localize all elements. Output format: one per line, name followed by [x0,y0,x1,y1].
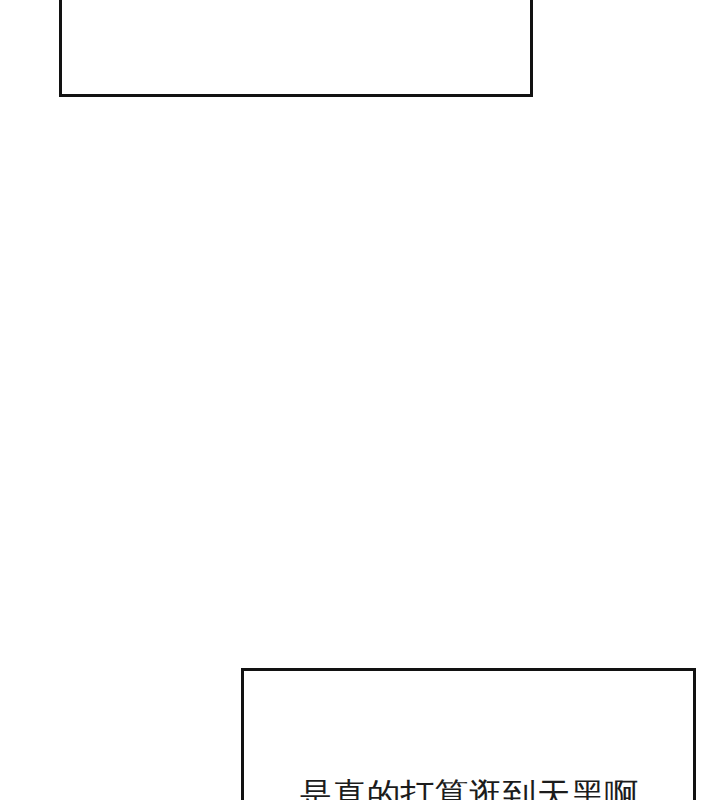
comic-page: 是真的打算逛到天黑啊 [0,0,720,800]
dialogue-text: 是真的打算逛到天黑啊 [244,776,693,800]
comic-panel-top [59,0,533,97]
comic-panel-bottom: 是真的打算逛到天黑啊 [241,668,696,800]
